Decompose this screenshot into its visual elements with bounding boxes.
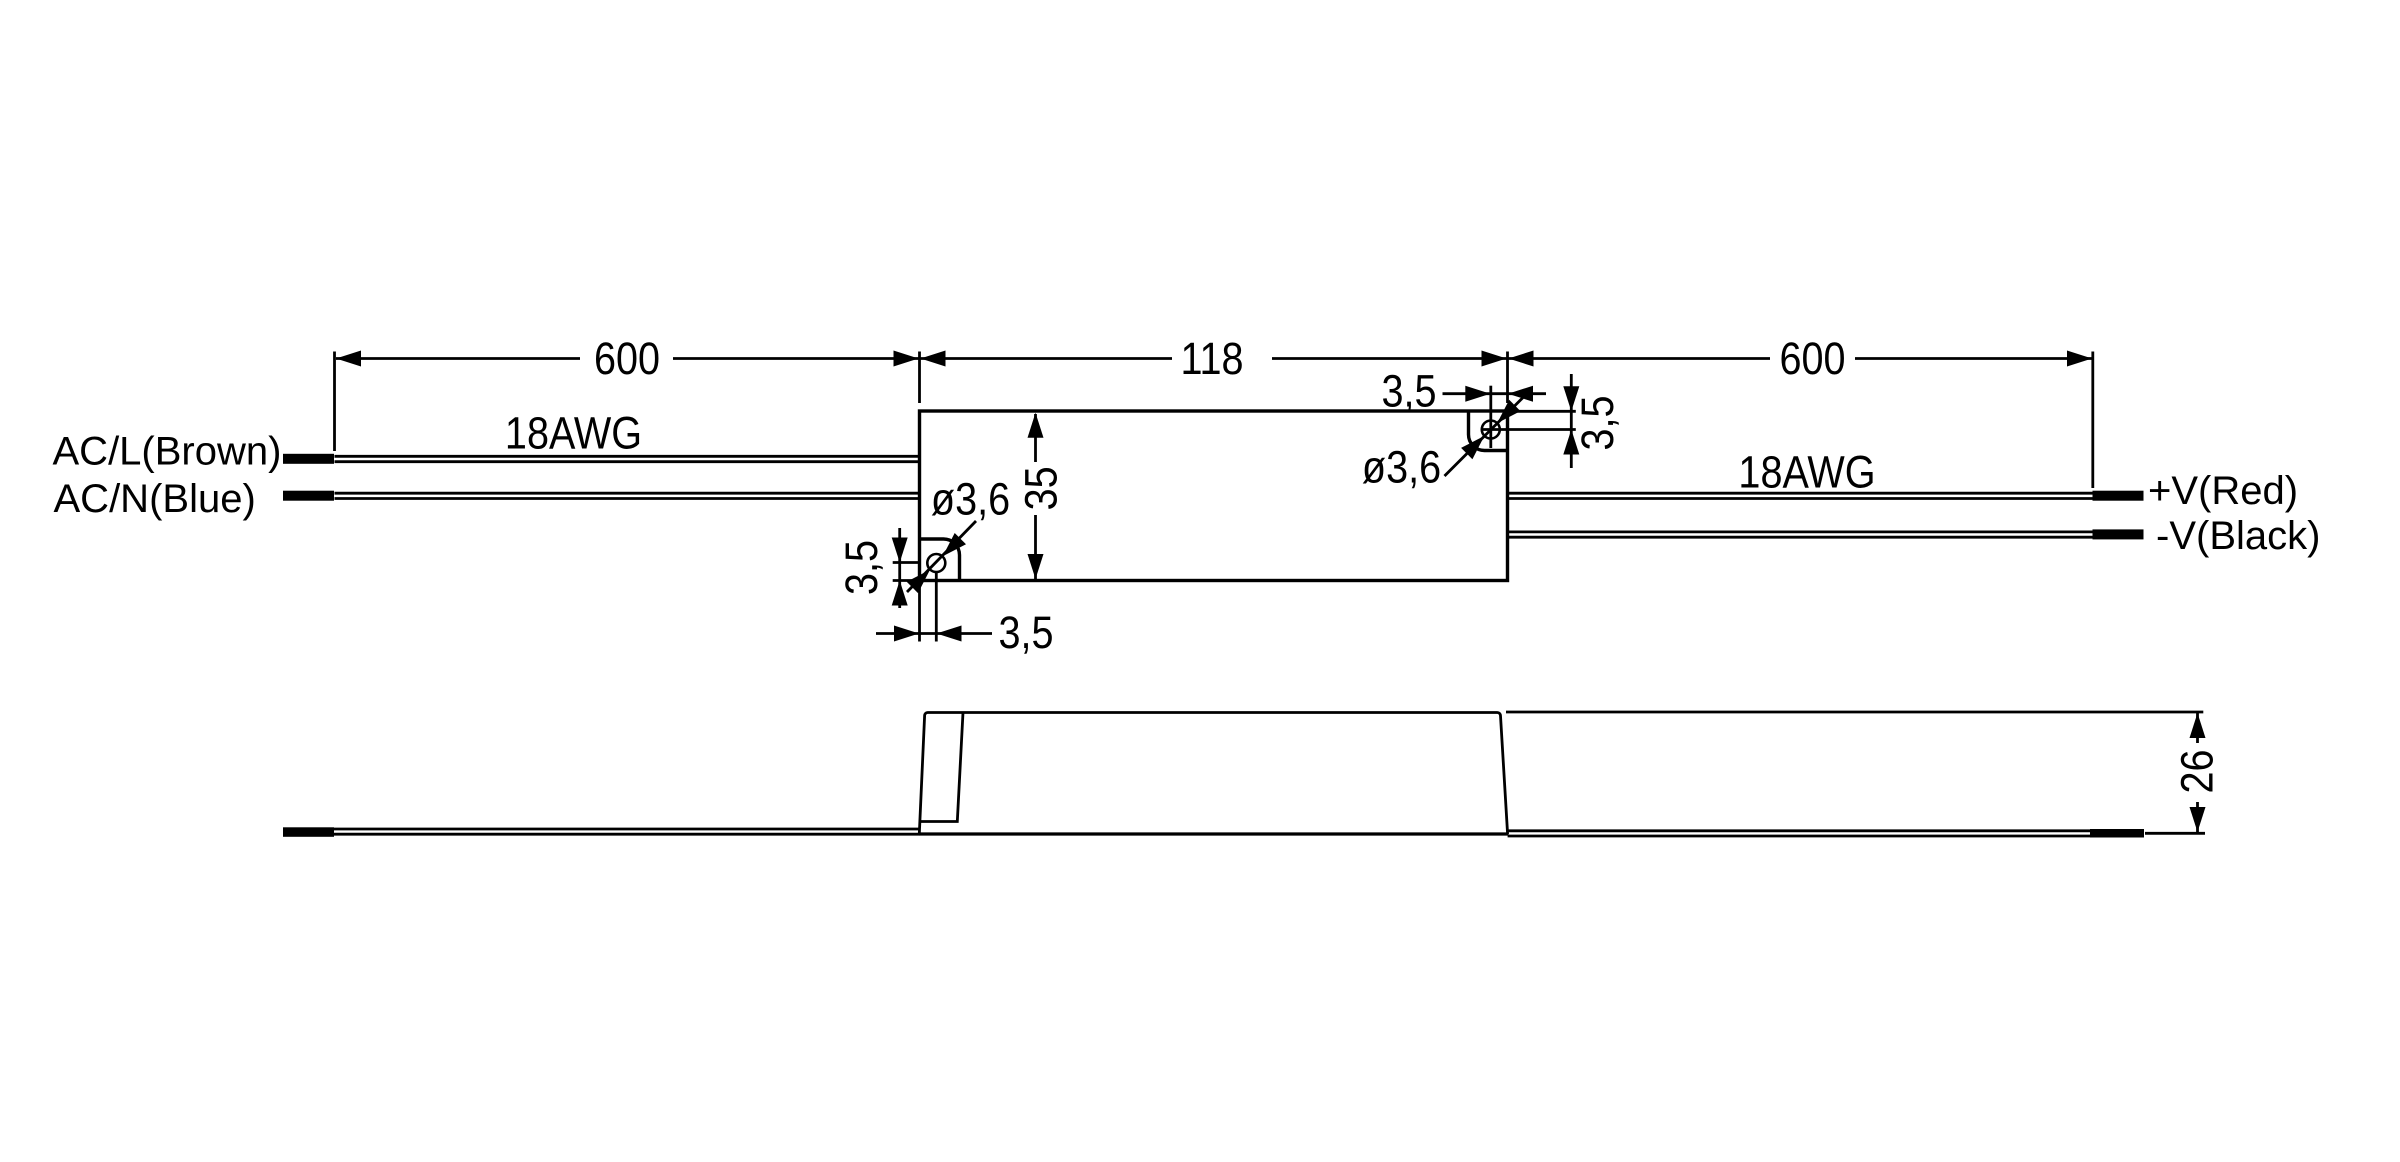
svg-text:18AWG: 18AWG	[505, 408, 642, 458]
svg-text:26: 26	[2172, 749, 2222, 793]
svg-text:3,5: 3,5	[837, 540, 887, 595]
svg-text:AC/N(Blue): AC/N(Blue)	[54, 477, 256, 521]
svg-text:AC/L(Brown): AC/L(Brown)	[53, 429, 282, 473]
svg-text:+V(Red): +V(Red)	[2148, 469, 2298, 513]
svg-text:600: 600	[594, 334, 660, 384]
svg-text:600: 600	[1779, 334, 1845, 384]
svg-text:ø3,6: ø3,6	[1362, 442, 1441, 492]
svg-text:35: 35	[1016, 466, 1066, 510]
svg-text:18AWG: 18AWG	[1738, 447, 1875, 497]
svg-text:118: 118	[1180, 334, 1243, 384]
svg-text:3,5: 3,5	[1381, 366, 1436, 416]
svg-text:ø3,6: ø3,6	[931, 474, 1010, 524]
svg-text:3,5: 3,5	[1573, 395, 1623, 450]
svg-text:3,5: 3,5	[998, 608, 1053, 658]
svg-text:-V(Black): -V(Black)	[2156, 514, 2320, 558]
